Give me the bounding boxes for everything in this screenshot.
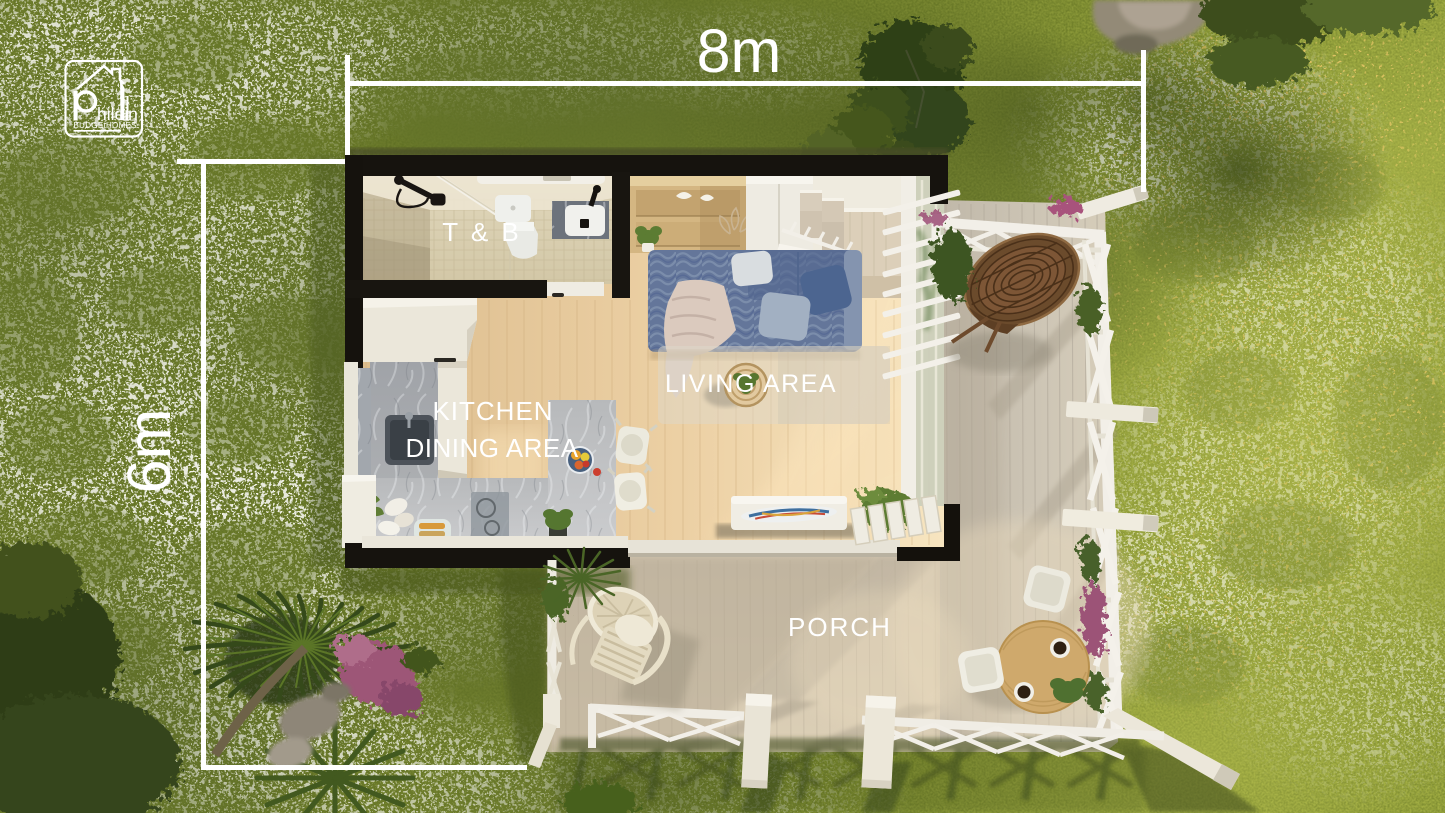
svg-text:BUDGEtHOMES: BUDGEtHOMES — [74, 121, 137, 130]
svg-text:8m: 8m — [697, 17, 782, 85]
svg-text:KITCHEN: KITCHEN — [432, 396, 553, 426]
svg-text:T & B: T & B — [442, 217, 522, 247]
svg-text:DINING AREA: DINING AREA — [405, 433, 578, 463]
svg-text:6m: 6m — [115, 409, 183, 494]
svg-text:LIVING AREA: LIVING AREA — [665, 370, 837, 398]
svg-text:PORCH: PORCH — [788, 612, 892, 642]
